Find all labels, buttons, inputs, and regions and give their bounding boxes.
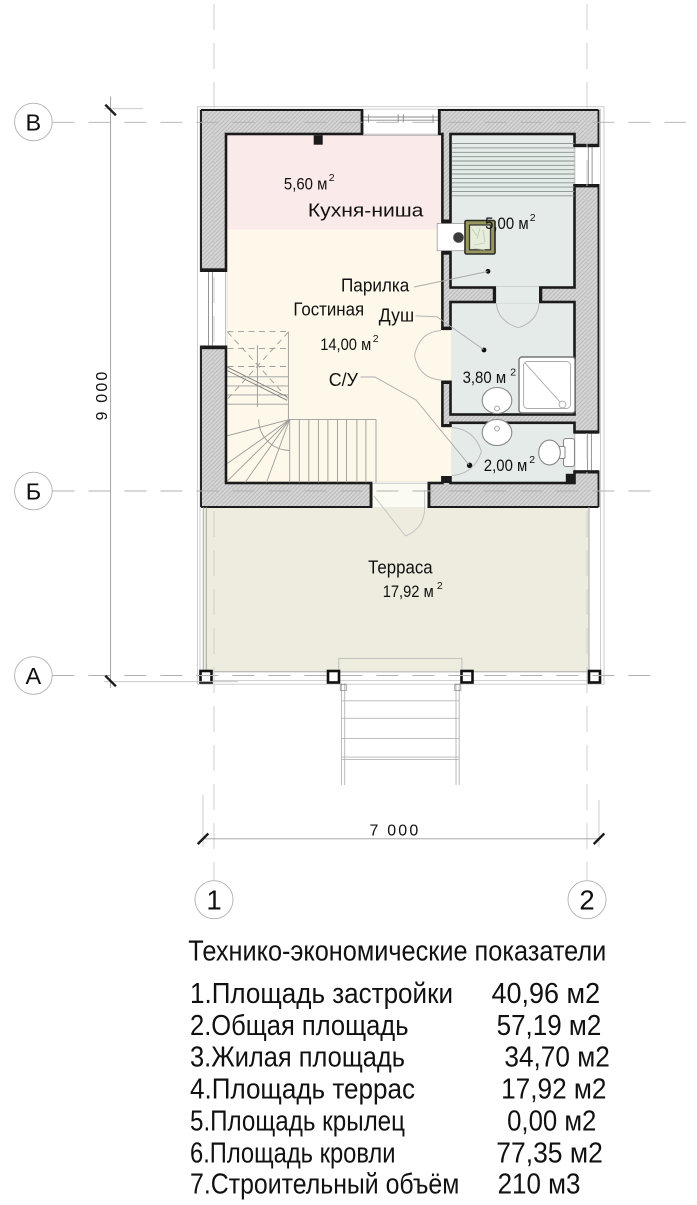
svg-text:С/У: С/У <box>329 369 358 390</box>
svg-text:7.Строительный объём: 7.Строительный объём <box>190 1169 459 1200</box>
svg-text:77,35 м2: 77,35 м2 <box>496 1137 603 1169</box>
svg-text:0,00 м2: 0,00 м2 <box>507 1106 596 1138</box>
svg-text:5,00 м: 5,00 м <box>485 215 528 233</box>
svg-text:40,96 м2: 40,96 м2 <box>492 978 601 1010</box>
svg-text:Б: Б <box>26 478 41 504</box>
svg-text:57,19 м2: 57,19 м2 <box>497 1010 602 1042</box>
svg-text:2: 2 <box>529 454 535 466</box>
svg-text:Терраса: Терраса <box>368 557 433 578</box>
svg-text:2: 2 <box>579 885 594 916</box>
svg-text:2.Общая площадь: 2.Общая площадь <box>190 1010 409 1042</box>
svg-text:Душ: Душ <box>379 305 414 326</box>
svg-text:5.Площадь крылец: 5.Площадь крылец <box>190 1106 405 1138</box>
svg-text:А: А <box>26 663 42 689</box>
svg-text:2: 2 <box>530 212 536 224</box>
svg-text:2: 2 <box>329 172 335 184</box>
svg-text:2: 2 <box>373 333 379 345</box>
svg-text:Технико-экономические показате: Технико-экономические показатели <box>188 936 606 968</box>
svg-text:2: 2 <box>437 580 443 592</box>
svg-text:210 м3: 210 м3 <box>498 1169 581 1200</box>
svg-text:34,70 м2: 34,70 м2 <box>504 1042 609 1074</box>
svg-text:3,80 м: 3,80 м <box>463 369 507 387</box>
svg-text:5,60 м: 5,60 м <box>284 175 328 193</box>
svg-text:Гостиная: Гостиная <box>293 299 364 320</box>
svg-text:1.Площадь застройки: 1.Площадь застройки <box>190 978 453 1010</box>
svg-text:14,00 м: 14,00 м <box>320 336 371 354</box>
svg-text:17,92 м2: 17,92 м2 <box>501 1074 606 1106</box>
svg-text:2,00 м: 2,00 м <box>484 457 528 475</box>
svg-text:9 000: 9 000 <box>94 369 111 420</box>
svg-text:6.Площадь кровли: 6.Площадь кровли <box>190 1137 396 1169</box>
svg-text:3.Жилая площадь: 3.Жилая площадь <box>190 1042 405 1074</box>
svg-text:7 000: 7 000 <box>369 822 420 839</box>
svg-text:Парилка: Парилка <box>341 275 410 296</box>
svg-text:1: 1 <box>206 885 221 916</box>
svg-text:4.Площадь террас: 4.Площадь террас <box>190 1074 415 1106</box>
svg-text:2: 2 <box>510 367 516 379</box>
svg-text:17,92 м: 17,92 м <box>383 583 434 601</box>
svg-text:Кухня-ниша: Кухня-ниша <box>308 200 424 221</box>
svg-text:В: В <box>26 109 42 135</box>
